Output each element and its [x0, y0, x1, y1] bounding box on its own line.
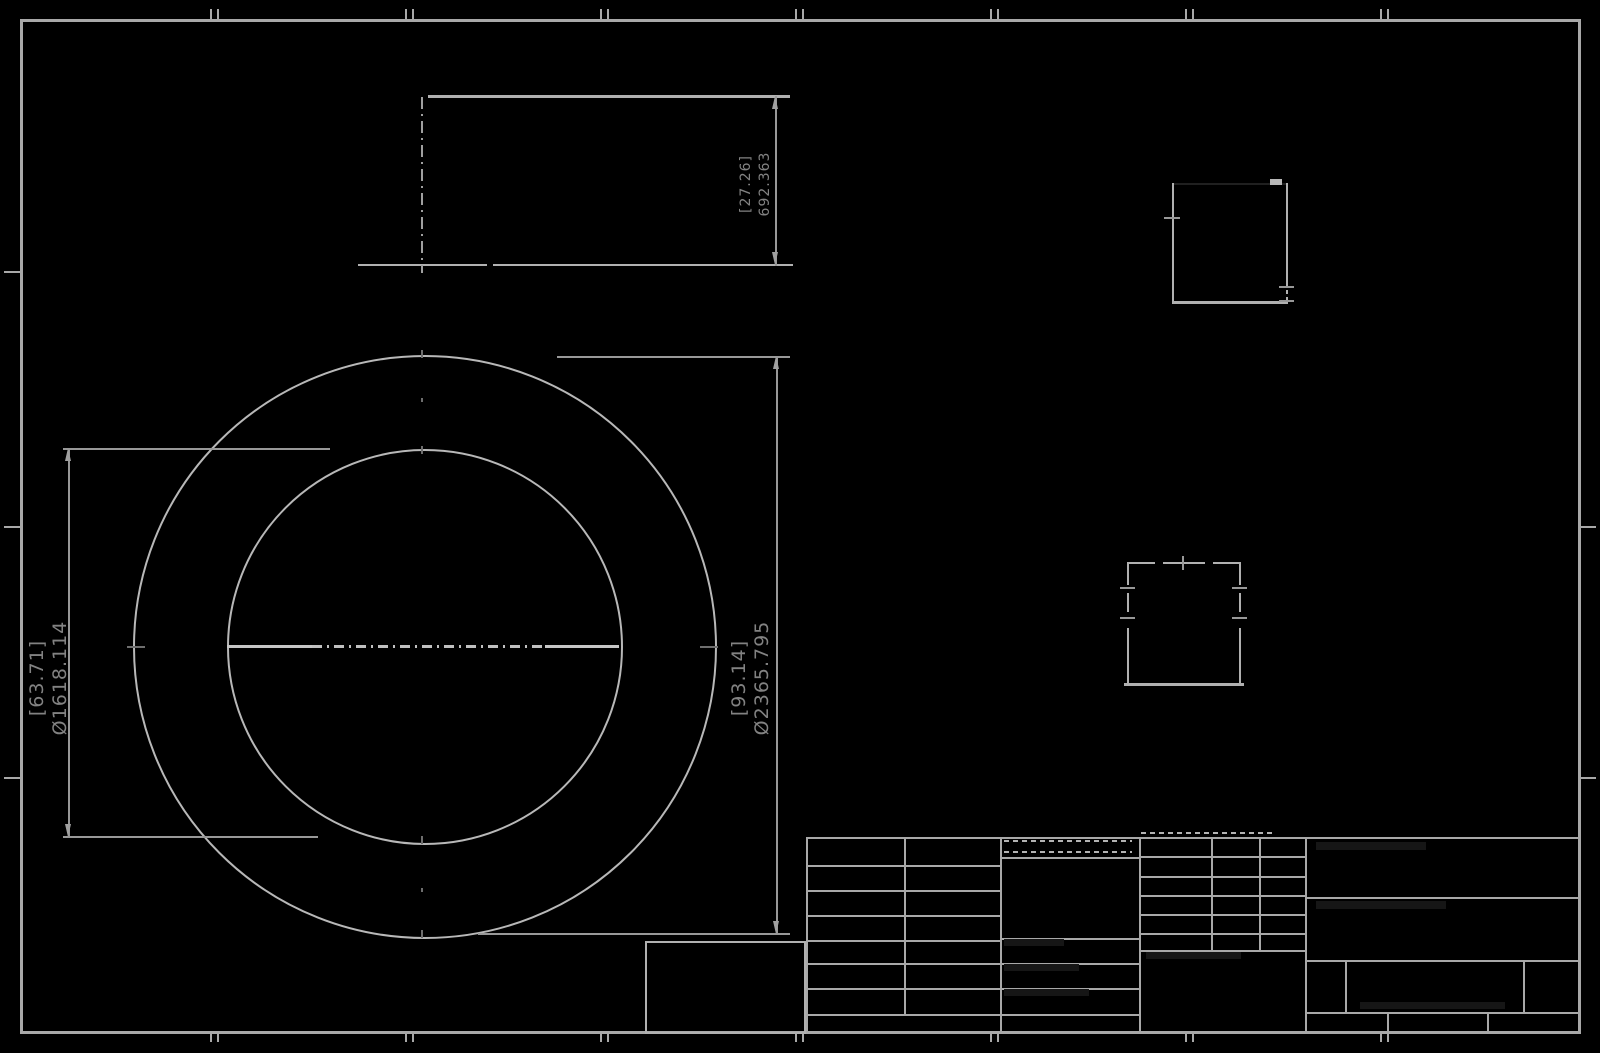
title-block-row-line: [806, 915, 1000, 917]
detail-rect1-left-edge: [1172, 183, 1174, 303]
detail-rect1-center-tick: [1279, 300, 1294, 302]
title-block-top-edge: [806, 837, 1581, 839]
title-block-row-line: [1139, 876, 1305, 878]
extension-line: [63, 448, 330, 450]
plan-center-mark: [421, 446, 423, 454]
title-block-divider: [1523, 960, 1525, 1012]
detail-rect1-bottom-edge: [1172, 301, 1288, 304]
illegible-text-mark: [1004, 939, 1064, 946]
zone-tick: [4, 777, 20, 779]
extension-line: [63, 836, 318, 838]
dimension-mm: Ø1618.114: [49, 621, 72, 736]
illegible-text-mark: [1004, 989, 1089, 996]
title-block-row-line: [1139, 856, 1305, 858]
zone-tick: [990, 9, 999, 19]
arrowhead: [65, 824, 71, 837]
zone-tick: [1185, 9, 1194, 19]
arrowhead: [773, 356, 779, 369]
plan-center-mark: [421, 836, 423, 844]
arrowhead: [65, 448, 71, 461]
plan-center-mark: [421, 398, 423, 402]
title-block-divider: [1345, 960, 1347, 1012]
title-block-row-line: [1139, 914, 1305, 916]
detail-rect1-corner-mark: [1270, 179, 1282, 185]
dimension-mm: 692.363: [756, 152, 775, 217]
zone-tick: [1380, 1032, 1389, 1042]
drawing-sheet: [27.26] 692.363 [63.71] Ø1618.114 [93.14…: [0, 0, 1600, 1053]
dimension-inch: [27.26]: [737, 152, 756, 217]
zone-tick: [600, 9, 609, 19]
zone-tick: [1580, 526, 1596, 528]
arrowhead: [772, 252, 778, 265]
detail-rect2-right-edge: [1239, 628, 1241, 685]
zone-tick: [795, 9, 804, 19]
dimension-text-outer-diameter: [93.14] Ø2365.795: [728, 621, 774, 736]
detail-rect2-center-tick: [1232, 587, 1247, 589]
detail-rect2-left-edge: [1127, 628, 1129, 685]
plan-center-tick: [700, 646, 718, 648]
detail-rect2-center-tick: [1120, 587, 1135, 589]
title-block-row-line: [806, 963, 1139, 965]
plan-center-tick: [127, 646, 145, 648]
arrowhead: [773, 921, 779, 934]
zone-tick: [1185, 1032, 1194, 1042]
blank-cell-box: [645, 941, 806, 1034]
dimension-mm: Ø2365.795: [751, 621, 774, 736]
title-block-row-line: [806, 865, 1000, 867]
dimension-line-outer-diameter: [776, 356, 778, 935]
illegible-text-mark: [1004, 840, 1132, 842]
zone-tick: [600, 1032, 609, 1042]
detail-rect2-left-edge: [1127, 593, 1129, 612]
title-block-row-line: [1139, 933, 1305, 935]
detail-rect2-center-tick: [1182, 556, 1184, 570]
extension-line: [557, 356, 790, 358]
zone-tick: [210, 9, 219, 19]
dimension-text-inner-diameter: [63.71] Ø1618.114: [26, 621, 72, 736]
plan-center-line: [545, 645, 619, 648]
detail-rect1-center-tick: [1164, 217, 1180, 219]
detail-rect1-center-tick: [1279, 286, 1294, 288]
illegible-text-mark: [1004, 964, 1079, 971]
detail-rect2-top-edge: [1127, 562, 1155, 564]
title-block-row-line: [806, 988, 1139, 990]
dimension-text-height: [27.26] 692.363: [737, 152, 775, 217]
side-view-center-line: [421, 97, 423, 273]
detail-rect2-bottom-edge: [1124, 683, 1244, 686]
illegible-text-mark: [1316, 901, 1446, 909]
detail-rect2-center-tick: [1120, 617, 1135, 619]
title-block-row-line: [1305, 1012, 1581, 1014]
dimension-line-height: [775, 96, 777, 266]
illegible-text-mark: [1004, 851, 1132, 853]
dimension-inch: [93.14]: [728, 621, 751, 736]
zone-tick: [405, 1032, 414, 1042]
illegible-text-mark: [1141, 832, 1273, 834]
plan-center-line: [312, 645, 545, 648]
detail-rect1-right-edge: [1286, 183, 1288, 286]
zone-tick: [990, 1032, 999, 1042]
arrowhead: [772, 96, 778, 109]
detail-rect2-center-tick: [1232, 617, 1247, 619]
extension-line: [478, 933, 790, 935]
illegible-text-mark: [1146, 952, 1241, 959]
title-block-divider: [1000, 837, 1002, 1032]
zone-tick: [4, 271, 20, 273]
dimension-inch: [63.71]: [26, 621, 49, 736]
plan-center-mark: [421, 350, 423, 358]
side-view-top-edge: [428, 95, 790, 98]
detail-rect2-left-edge: [1127, 563, 1129, 585]
title-block-divider: [1487, 1012, 1489, 1032]
plan-center-mark: [421, 888, 423, 892]
detail-rect2-right-edge: [1239, 563, 1241, 585]
detail-rect2-top-edge: [1213, 562, 1241, 564]
title-block-divider: [1387, 1012, 1389, 1032]
illegible-text-mark: [1360, 1002, 1505, 1009]
title-block-row-line: [1305, 897, 1581, 899]
title-block-divider: [1305, 837, 1307, 1032]
zone-tick: [1380, 9, 1389, 19]
detail-rect1-right-edge: [1286, 290, 1288, 294]
plan-center-line: [227, 645, 312, 648]
detail-rect2-right-edge: [1239, 593, 1241, 612]
side-view-bottom-edge: [493, 264, 793, 266]
plan-center-mark: [421, 930, 423, 938]
zone-tick: [405, 9, 414, 19]
title-block-row-line: [1000, 857, 1139, 859]
zone-tick: [210, 1032, 219, 1042]
title-block-row-line: [806, 1014, 1139, 1016]
title-block-row-line: [806, 890, 1000, 892]
illegible-text-mark: [1316, 842, 1426, 850]
title-block-row-line: [806, 940, 1000, 942]
zone-tick: [4, 526, 20, 528]
title-block-row-line: [1139, 895, 1305, 897]
zone-tick: [1580, 777, 1596, 779]
detail-rect2-top-edge: [1163, 562, 1205, 564]
